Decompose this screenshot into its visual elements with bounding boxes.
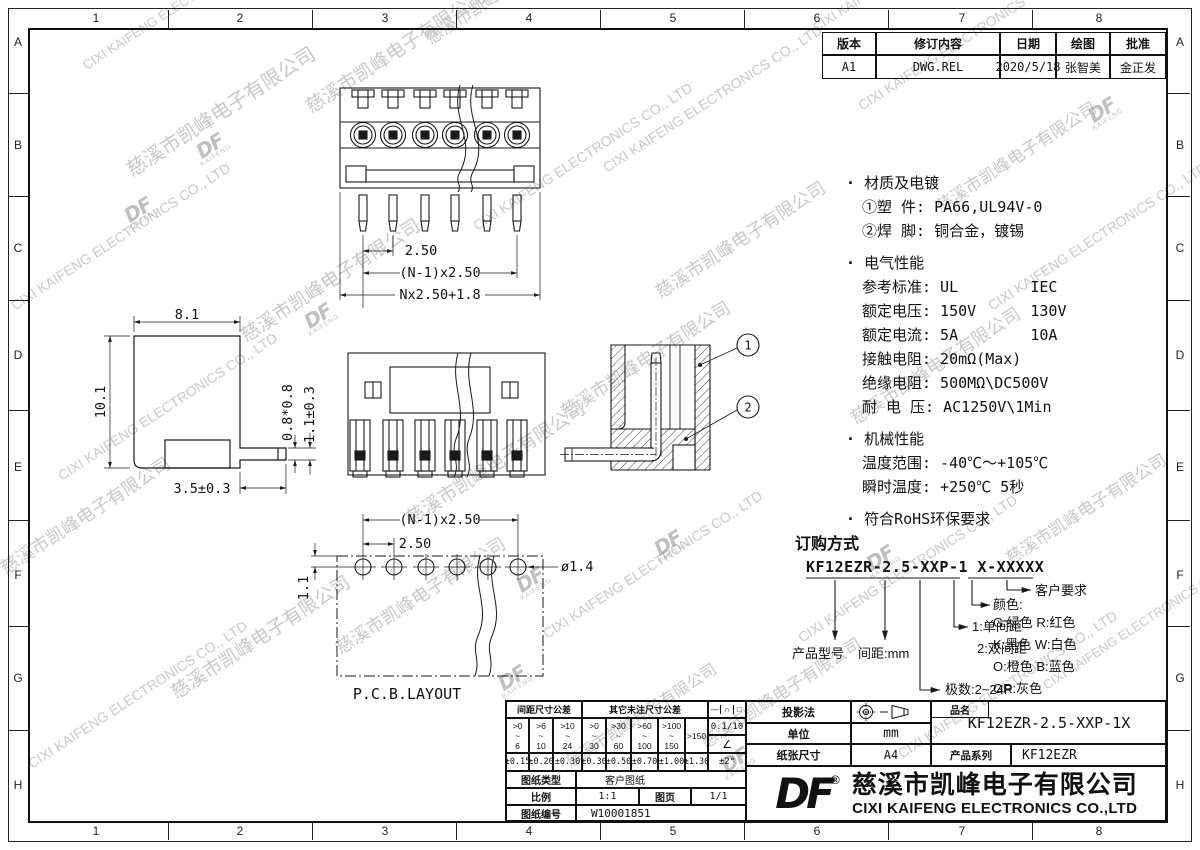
rev-col-approved: 批准 (1110, 32, 1166, 55)
grid-row-label: G (13, 671, 22, 685)
dim-pitch-total: (N-1)x2.50 (399, 265, 480, 281)
tol-range-sep: ~ (616, 731, 621, 741)
label-product-model: 产品型号 (792, 646, 844, 661)
tol-range-sep: ~ (515, 731, 520, 741)
grid-row-label: H (14, 778, 23, 792)
spec-section-title: 电气性能 (846, 252, 924, 273)
balloon-1-label: 1 (744, 339, 751, 353)
grid-col-label: 7 (959, 824, 966, 838)
tol-header-other: 其它未注尺寸公差 (582, 701, 708, 718)
tol-value-cell: ±0.50 (606, 753, 631, 771)
grid-col-label: 6 (814, 824, 821, 838)
dim-width: 8.1 (175, 308, 199, 323)
ordering-title: 订购方式 (795, 534, 859, 553)
tol-range-cell: >10~24 (553, 718, 582, 753)
tol-value-cell: ±0.70 (631, 753, 658, 771)
grid-col-label: 2 (237, 11, 244, 25)
label-color-title: 颜色: (993, 597, 1023, 612)
rev-col-date: 日期 (1000, 32, 1056, 55)
grid-tick (1168, 730, 1190, 731)
grid-col-label: 1 (93, 824, 100, 838)
grid-tick (888, 10, 889, 28)
grid-col-label: 5 (670, 11, 677, 25)
tol-range-bot: 60 (614, 741, 623, 751)
side-view-body (134, 336, 286, 468)
grid-row-label: F (14, 568, 21, 582)
grid-col-label: 2 (237, 824, 244, 838)
tol-range-bot: 30 (589, 741, 598, 751)
grid-col-label: 3 (382, 824, 389, 838)
bottom-view-body (348, 353, 545, 477)
grid-row-label: E (14, 460, 22, 474)
sheet-type-value: 客户图纸 (576, 771, 746, 788)
rev-drawn-by: 张智美 (1056, 55, 1110, 79)
grid-col-label: 3 (382, 11, 389, 25)
grid-tick (9, 520, 28, 521)
paper-size-label: 纸张尺寸 (746, 744, 851, 766)
series-label: 产品系列 (931, 744, 1011, 766)
page-label: 图页 (639, 788, 691, 805)
balloon-2-label: 2 (744, 401, 751, 415)
pcb-dim-pitch-total: (N-1)x2.50 (399, 512, 480, 528)
tol-range-sep: ~ (565, 731, 570, 741)
angle-tolerance: ±2° (708, 753, 746, 771)
dim-pin-section: 0.8*0.8 (280, 384, 296, 441)
first-angle-projection-icon (855, 703, 927, 721)
grid-tick (456, 822, 457, 840)
tol-range-cell: >100~150 (658, 718, 685, 753)
title-block: 间距尺寸公差 其它未注尺寸公差 — ∩ □ >0~6>6~10>10~24>0~… (505, 700, 1166, 821)
spec-line: 温度范围: -40℃～+105℃ (862, 452, 1048, 473)
front-view-contacts (351, 90, 530, 231)
spec-line: 绝缘电阻: 500MΩ\DC500V (862, 372, 1048, 393)
tol-range-bot: 100 (637, 741, 651, 751)
grid-row-label: C (1176, 241, 1185, 255)
break-line (467, 353, 474, 477)
spec-line: 额定电压: 150V 130V (862, 300, 1067, 321)
tol-range-top: >100 (662, 721, 681, 731)
grid-row-label: F (1176, 568, 1183, 582)
tol-range-sep: ~ (592, 731, 597, 741)
straightness-icon: — (709, 705, 720, 714)
series-value: KF12EZR (1011, 744, 1167, 766)
tol-range-top: >0 (589, 721, 599, 731)
grid-tick (1168, 93, 1190, 94)
roundness-icon: ∩ (720, 705, 732, 714)
grid-tick (312, 10, 313, 28)
tol-range-bot: 150 (664, 741, 678, 751)
grid-row-label: A (1176, 35, 1184, 49)
sheet-type-label: 图纸类型 (506, 771, 576, 788)
pcb-holes (350, 554, 531, 580)
tol-value-cell: ±1.30 (685, 753, 708, 771)
grid-col-label: 6 (814, 11, 821, 25)
unit-label: 单位 (746, 723, 851, 744)
grid-tick (600, 10, 601, 28)
tol-range-top: >30 (611, 721, 625, 731)
pcb-layout-label: P.C.B.LAYOUT (353, 685, 461, 703)
grid-tick (9, 196, 28, 197)
spec-section-title: 材质及电镀 (846, 172, 939, 193)
grid-col-label: 4 (526, 824, 533, 838)
grid-tick (312, 822, 313, 840)
projection-symbol-cell (851, 701, 931, 723)
spec-line: 参考标准: UL IEC (862, 276, 1057, 297)
tol-range-top: >6 (536, 721, 546, 731)
grid-tick (9, 626, 28, 627)
grid-row-label: D (1176, 348, 1185, 362)
grid-row-label: G (1175, 671, 1184, 685)
pcb-dim-offset: 1.1 (296, 576, 312, 600)
dim-overall: Nx2.50+1.8 (399, 287, 480, 303)
grid-col-label: 4 (526, 11, 533, 25)
grid-row-label: C (14, 241, 23, 255)
drawing-number-value: W10001851 (576, 805, 746, 822)
rev-col-drawn: 绘图 (1056, 32, 1110, 55)
break-line (475, 556, 483, 676)
grid-col-label: 7 (959, 11, 966, 25)
angle-symbol: ∠ (708, 735, 746, 753)
tol-value-cell: ±0.15 (506, 753, 529, 771)
grid-tick (1168, 410, 1190, 411)
spec-line: 额定电流: 5A 10A (862, 324, 1057, 345)
grid-tick (9, 730, 28, 731)
flatness-icon: □ (733, 705, 745, 714)
grid-row-label: B (14, 138, 22, 152)
dim-pin-height: 1.1±0.3 (302, 386, 318, 443)
scale-label: 比例 (506, 788, 576, 805)
rev-col-version: 版本 (822, 32, 876, 55)
product-specifications: 材质及电镀①塑 件: PA66,UL94V-0②焊 脚: 铜合金，镀锡电气性能参… (846, 156, 1168, 536)
label-customer: 客户要求 (1035, 583, 1087, 598)
paper-size-value: A4 (851, 744, 931, 766)
section-view-drawing: 1 2 (560, 325, 785, 495)
part-name-label: 品名 (931, 701, 989, 718)
grid-col-label: 8 (1096, 824, 1103, 838)
page-value: 1/1 (691, 788, 746, 805)
section-body (565, 345, 710, 470)
label-color-kw: K:黑色 W:白色 (993, 637, 1077, 652)
revision-table: 版本 修订内容 日期 绘图 批准 A1 DWG.REL 2020/5/18 张智… (822, 32, 1166, 79)
tol-range-cell: >30~60 (606, 718, 631, 753)
tol-range-top: >0 (513, 721, 523, 731)
tol-range-cell: >60~100 (631, 718, 658, 753)
spec-line: ②焊 脚: 铜合金，镀锡 (862, 220, 1024, 241)
tol-value-cell: ±1.00 (658, 753, 685, 771)
tol-range-sep: ~ (539, 731, 544, 741)
geo-tolerance-symbols: — ∩ □ (708, 701, 746, 718)
front-view-body (340, 85, 540, 231)
front-view-drawing: 2.50 (N-1)x2.50 Nx2.50+1.8 (300, 80, 570, 315)
tol-range-cell: >0~6 (506, 718, 529, 753)
grid-col-label: 1 (93, 11, 100, 25)
grid-tick (1168, 626, 1190, 627)
grid-tick (1168, 300, 1190, 301)
drawing-number-label: 图纸编号 (506, 805, 576, 822)
company-names: 慈溪市凯峰电子有限公司 CIXI KAIFENG ELECTRONICS CO.… (852, 771, 1138, 817)
tol-range-bot: 6 (515, 741, 520, 751)
company-name-en: CIXI KAIFENG ELECTRONICS CO.,LTD (852, 800, 1138, 817)
company-block: DF® 慈溪市凯峰电子有限公司 CIXI KAIFENG ELECTRONICS… (746, 766, 1167, 822)
spec-line: 瞬时温度: +250℃ 5秒 (862, 476, 1024, 497)
grid-row-label: H (1176, 778, 1185, 792)
grid-tick (9, 93, 28, 94)
dim-pin-length: 3.5±0.3 (174, 481, 231, 497)
rev-version: A1 (822, 55, 876, 79)
pcb-dim-hole: ø1.4 (561, 559, 594, 575)
flatness-tolerance: 0.1/10 (708, 718, 746, 735)
grid-tick (1032, 10, 1033, 28)
unit-value: mm (851, 723, 931, 744)
tol-range-sep: ~ (669, 731, 674, 741)
tol-value-cell: ±0.30 (553, 753, 582, 771)
pcb-dim-pitch: 2.50 (399, 536, 432, 552)
grid-col-label: 5 (670, 824, 677, 838)
ordering-diagram: 订购方式 KF12EZR-2.5-XXP-1 X-XXXXX 产品型号 间距:m… (790, 532, 1170, 710)
grid-tick (9, 410, 28, 411)
grid-row-label: D (14, 348, 23, 362)
tol-range-cell: >150 (685, 718, 708, 753)
scale-value: 1:1 (576, 788, 639, 805)
grid-col-label: 8 (1096, 11, 1103, 25)
tol-value-cell: ±0.30 (582, 753, 606, 771)
spec-line: 接触电阻: 20mΩ(Max) (862, 348, 1021, 369)
tol-range-cell: >6~10 (529, 718, 553, 753)
grid-row-label: B (1176, 138, 1184, 152)
company-logo: DF® (775, 773, 839, 815)
grid-tick (744, 822, 745, 840)
grid-tick (744, 10, 745, 28)
tol-range-top: >10 (560, 721, 574, 731)
tol-range-bot: 10 (536, 741, 545, 751)
grid-tick (1032, 822, 1033, 840)
label-color-gray: GR:灰色 (993, 681, 1042, 696)
spec-line: ①塑 件: PA66,UL94V-0 (862, 196, 1042, 217)
side-view-drawing: 8.1 10.1 0.8*0.8 1.1±0.3 3.5±0.3 (90, 308, 350, 508)
tol-value-cell: ±0.20 (529, 753, 553, 771)
spec-line: 耐 电 压: AC1250V\1Min (862, 396, 1052, 417)
dim-height: 10.1 (93, 386, 109, 419)
grid-tick (9, 300, 28, 301)
rev-change: DWG.REL (876, 55, 1000, 79)
rev-col-change: 修订内容 (876, 32, 1000, 55)
tol-range-cell: >0~30 (582, 718, 606, 753)
grid-tick (168, 10, 169, 28)
grid-row-label: A (14, 35, 22, 49)
tol-range-bot: 24 (563, 741, 572, 751)
ordering-code: KF12EZR-2.5-XXP-1 X-XXXXX (806, 558, 1044, 576)
projection-label: 投影法 (746, 701, 851, 723)
label-color-ob: O:橙色 B:蓝色 (993, 659, 1075, 674)
grid-row-label: E (1176, 460, 1184, 474)
spec-section-title: 符合RoHS环保要求 (846, 508, 990, 529)
tol-range-top: >60 (637, 721, 651, 731)
grid-tick (1168, 196, 1190, 197)
rev-approved-by: 金正发 (1110, 55, 1166, 79)
company-name-cn: 慈溪市凯峰电子有限公司 (852, 771, 1138, 800)
pcb-layout-drawing: (N-1)x2.50 2.50 1.1 ø1.4 P.C.B.LAYOUT (295, 498, 625, 713)
tol-range-sep: ~ (642, 731, 647, 741)
registered-mark: ® (831, 773, 840, 787)
grid-tick (600, 822, 601, 840)
rev-date: 2020/5/18 (1000, 55, 1056, 79)
label-pitch: 间距:mm (858, 646, 909, 661)
grid-tick (456, 10, 457, 28)
spec-section-title: 机械性能 (846, 428, 924, 449)
bottom-view-drawing (340, 345, 555, 487)
label-color-gr: G:绿色 R:红色 (993, 615, 1075, 630)
grid-tick (168, 822, 169, 840)
tol-header-pitch: 间距尺寸公差 (506, 701, 582, 718)
grid-tick (888, 822, 889, 840)
bottom-view-slots (350, 420, 527, 477)
grid-tick (1168, 520, 1190, 521)
kaifeng-logo-icon: DF (775, 769, 831, 818)
dim-pitch: 2.50 (405, 243, 438, 259)
engineering-drawing-sheet: 1122334455667788AABBCCDDEEFFGGHH 版本 修订内容… (0, 0, 1200, 850)
